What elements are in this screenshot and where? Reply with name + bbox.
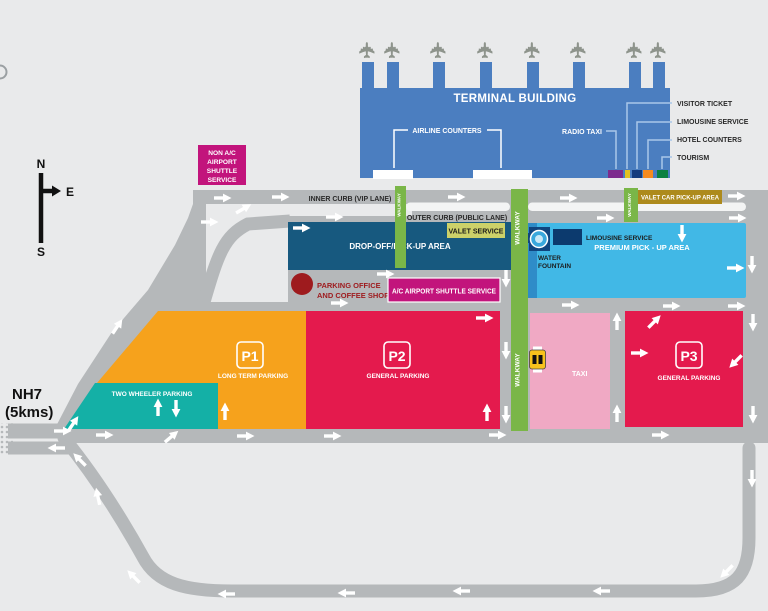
svg-text:✈: ✈ <box>624 41 647 59</box>
compass-north: N <box>37 157 46 171</box>
visitor-ticket-square <box>625 170 630 178</box>
svg-text:✈: ✈ <box>648 41 671 59</box>
svg-text:SHUTTLE: SHUTTLE <box>207 168 238 175</box>
radio-taxi-label: RADIO TAXI <box>562 129 602 136</box>
limousine-service-label: LIMOUSINE SERVICE <box>677 119 749 126</box>
inner-curb-label: INNER CURB (VIP LANE) <box>309 196 392 203</box>
counter-legend-squares <box>608 170 668 178</box>
limousine-service-map-label: LIMOUSINE SERVICE <box>586 235 653 242</box>
parking-lot-p3: P3 GENERAL PARKING <box>625 311 743 427</box>
taxi-label: TAXI <box>572 371 587 378</box>
p2-code: P2 <box>388 348 405 364</box>
walkway-label: WALKWAY <box>397 193 402 217</box>
limousine-square <box>632 170 642 178</box>
walkway-label: WALKWAY <box>627 193 632 217</box>
outer-curb-label: OUTER CURB (PUBLIC LANE) <box>407 215 507 222</box>
taxi-icon <box>530 347 546 373</box>
p3-code: P3 <box>680 348 697 364</box>
svg-text:✈: ✈ <box>357 41 380 59</box>
compass-south: S <box>37 245 45 259</box>
two-wheeler-label: TWO WHEELER PARKING <box>112 391 193 398</box>
terminal-title: TERMINAL BUILDING <box>453 93 576 105</box>
ac-shuttle-label: A/C AIRPORT SHUTTLE SERVICE <box>392 289 496 296</box>
svg-text:✈: ✈ <box>382 41 405 59</box>
limousine-stand <box>553 229 582 245</box>
airline-counter-desk <box>473 170 532 179</box>
walkway-label: WALKWAY <box>515 353 522 387</box>
airport-parking-map: ✈ ✈ ✈ ✈ ✈ ✈ ✈ ✈ TERMINAL BUILDING AIRLIN… <box>0 0 768 611</box>
walkway-label: WALKWAY <box>515 211 522 245</box>
taxi-area: TAXI <box>530 313 611 429</box>
highway-name: NH7 <box>12 386 42 403</box>
radio-taxi-square <box>608 170 623 178</box>
parking-office-label-2: AND COFFEE SHOP <box>317 291 389 300</box>
ac-shuttle-service: A/C AIRPORT SHUTTLE SERVICE <box>388 278 500 302</box>
water-fountain-label-2: FOUNTAIN <box>538 263 571 270</box>
valet-service-label: VALET SERVICE <box>449 229 504 236</box>
p3-label: GENERAL PARKING <box>658 375 721 382</box>
parking-office-dot <box>291 273 313 295</box>
road-continuation-dots <box>0 423 13 439</box>
p1-label: LONG TERM PARKING <box>218 373 288 380</box>
visitor-ticket-label: VISITOR TICKET <box>677 101 733 108</box>
map-canvas: ✈ ✈ ✈ ✈ ✈ ✈ ✈ ✈ TERMINAL BUILDING AIRLIN… <box>0 0 768 611</box>
tourism-label: TOURISM <box>677 155 709 162</box>
lane-stripe <box>406 203 510 212</box>
p2-label: GENERAL PARKING <box>367 373 430 380</box>
premium-pickup-area: PREMIUM PICK - UP AREA WATER FOUNTAIN LI… <box>525 223 746 298</box>
premium-pickup-label: PREMIUM PICK - UP AREA <box>594 243 690 252</box>
hotel-counters-square <box>643 170 653 178</box>
airline-counter-desk <box>373 170 413 179</box>
tourism-square <box>657 170 668 178</box>
p1-code: P1 <box>241 348 258 364</box>
non-ac-shuttle-service: NON A/C AIRPORT SHUTTLE SERVICE <box>198 145 246 185</box>
svg-text:✈: ✈ <box>475 41 498 59</box>
highway-distance: (5kms) <box>5 404 53 421</box>
parking-lot-p2: P2 GENERAL PARKING <box>306 311 500 429</box>
svg-text:✈: ✈ <box>522 41 545 59</box>
road-continuation-dots <box>0 440 13 455</box>
valet-car-pickup-label: VALET CAR PICK-UP AREA <box>641 195 719 202</box>
hotel-counters-label: HOTEL COUNTERS <box>677 137 742 144</box>
airline-counters-label: AIRLINE COUNTERS <box>412 128 482 135</box>
svg-text:SERVICE: SERVICE <box>208 177 237 184</box>
parking-office-label-1: PARKING OFFICE <box>317 281 381 290</box>
svg-text:AIRPORT: AIRPORT <box>207 159 237 166</box>
water-fountain-label-1: WATER <box>538 255 561 262</box>
svg-text:✈: ✈ <box>428 41 451 59</box>
compass-east: E <box>66 185 74 199</box>
svg-text:✈: ✈ <box>568 41 591 59</box>
svg-text:NON A/C: NON A/C <box>208 150 236 157</box>
